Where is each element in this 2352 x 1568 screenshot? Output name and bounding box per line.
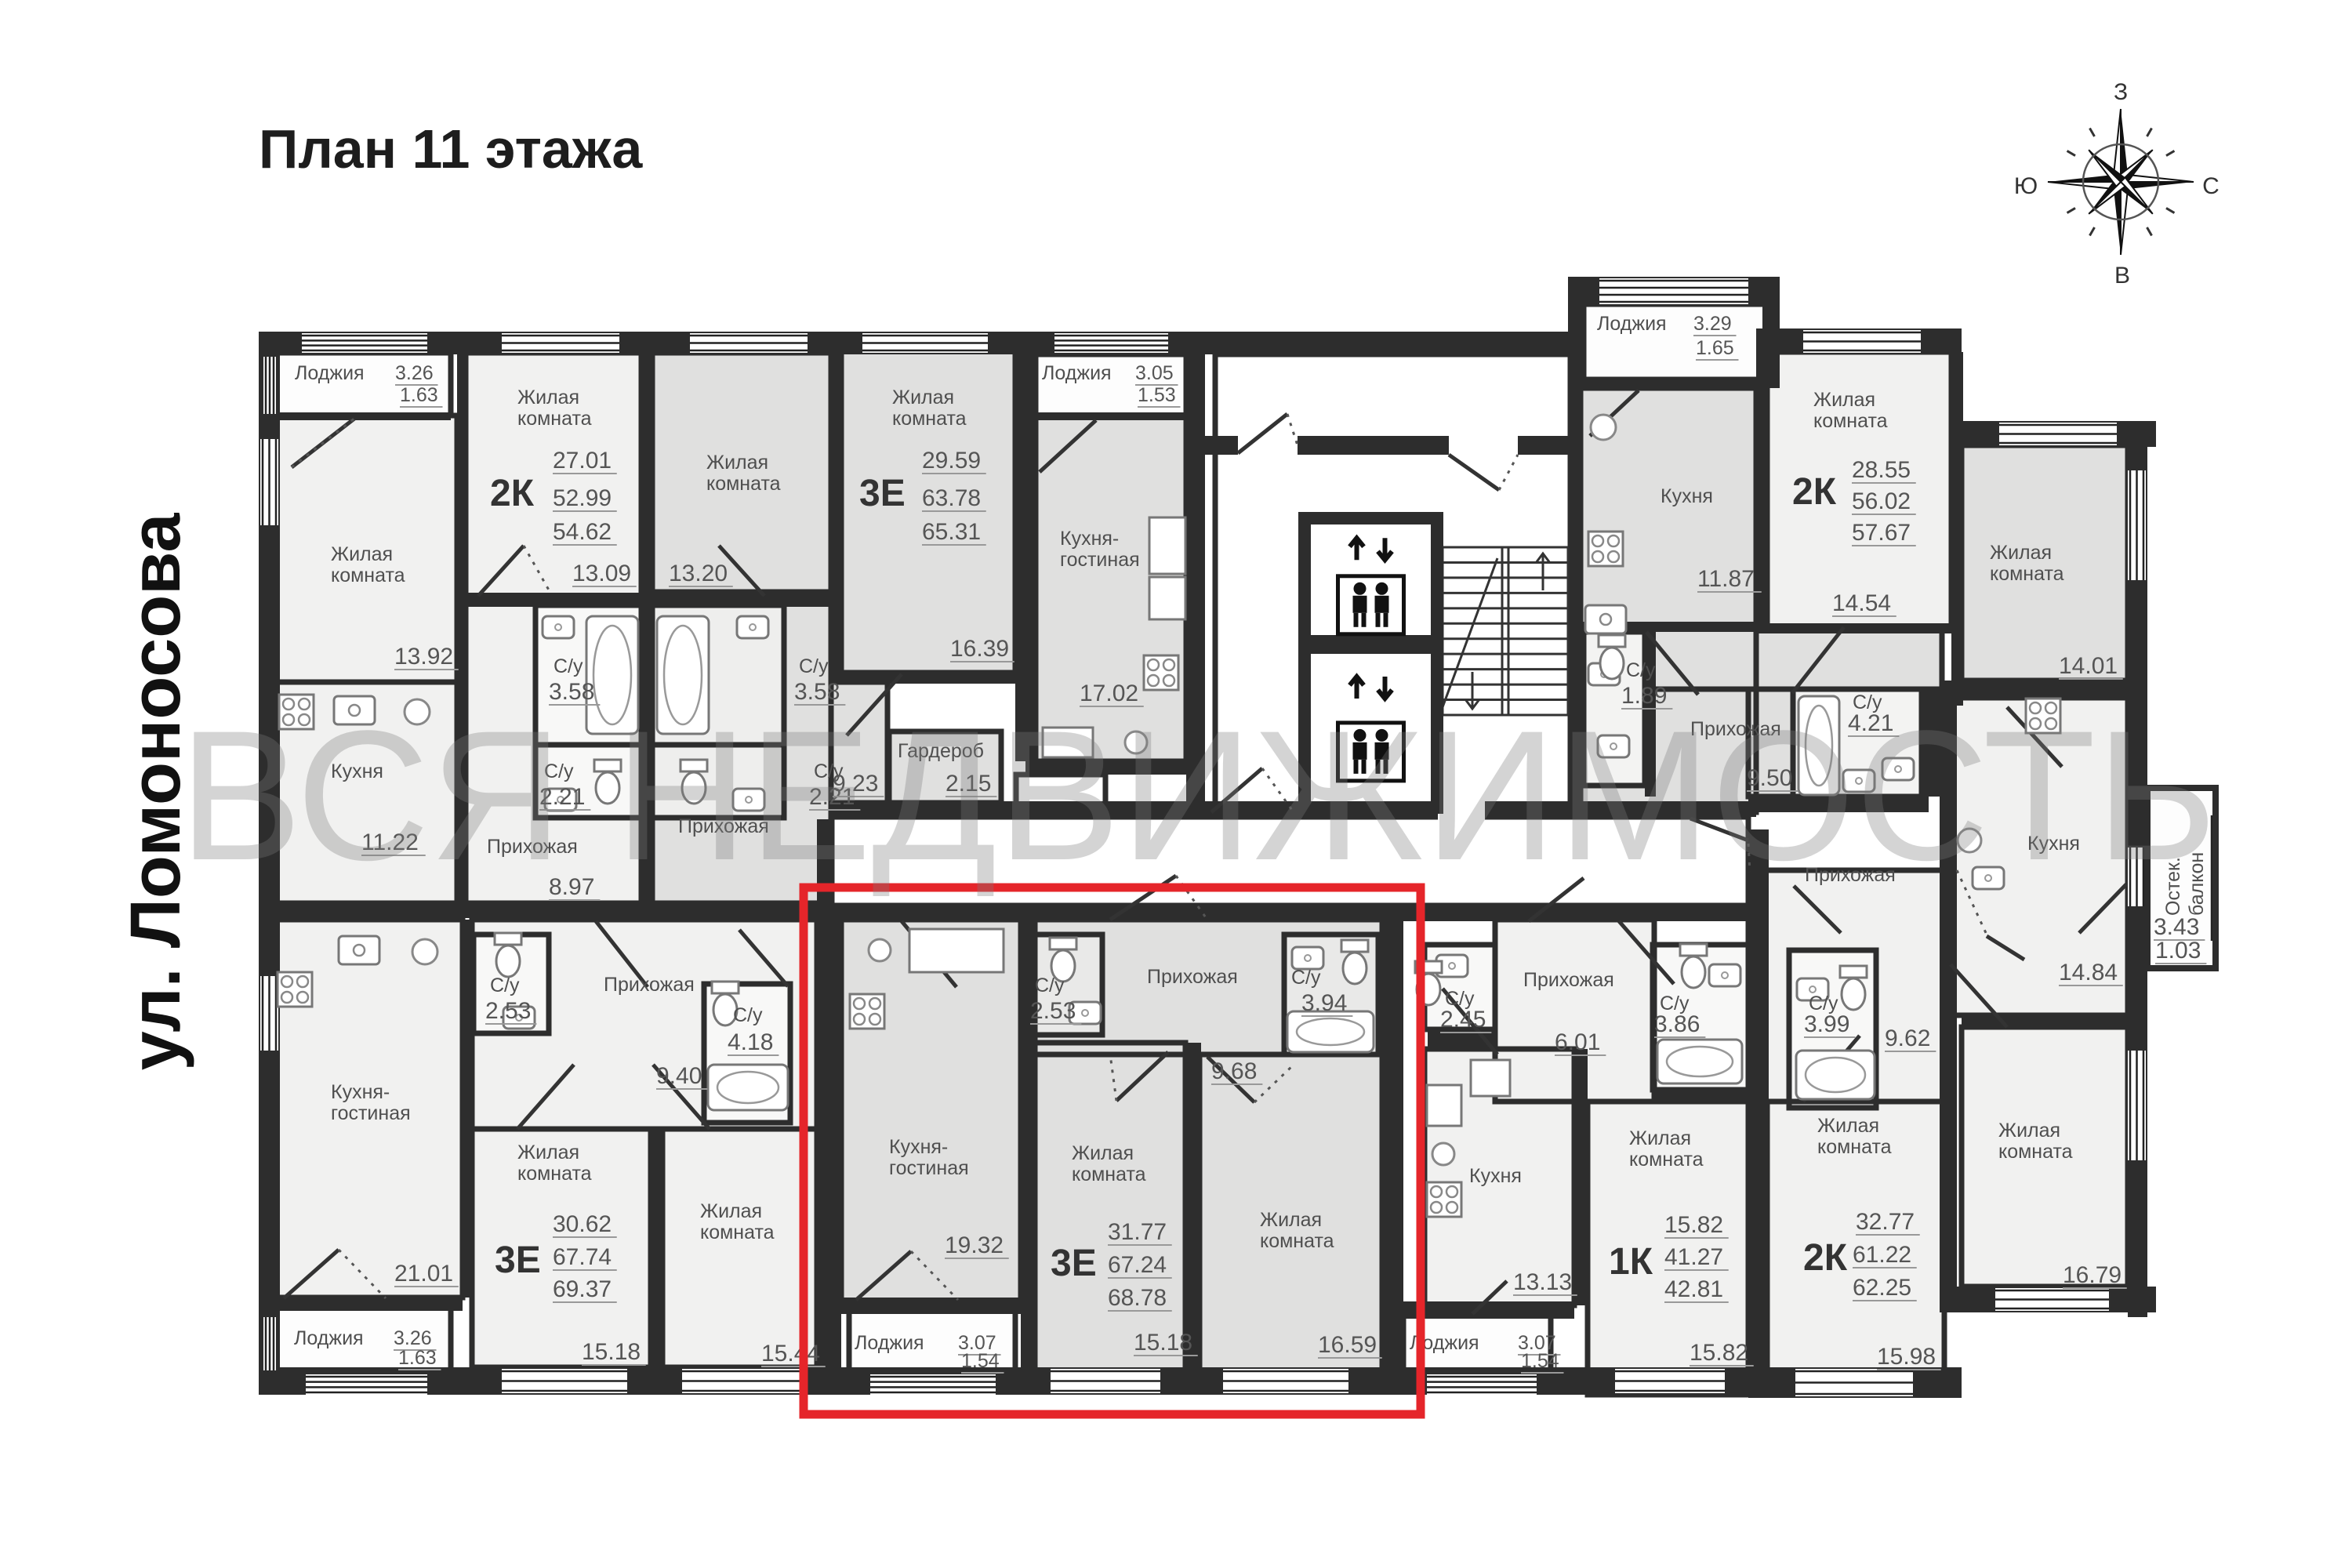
svg-text:1.63: 1.63 xyxy=(398,1347,437,1369)
svg-text:комната: комната xyxy=(1629,1149,1704,1171)
svg-text:2.45: 2.45 xyxy=(1440,1007,1486,1033)
svg-text:61.22: 61.22 xyxy=(1853,1242,1911,1268)
svg-text:С/у: С/у xyxy=(733,1004,763,1026)
svg-text:Жилая: Жилая xyxy=(700,1200,762,1222)
svg-text:Жилая: Жилая xyxy=(892,387,954,408)
svg-text:комната: комната xyxy=(331,564,405,586)
svg-text:15.18: 15.18 xyxy=(1134,1330,1192,1356)
svg-text:комната: комната xyxy=(1990,563,2064,585)
svg-text:Кухня: Кухня xyxy=(1661,485,1713,507)
svg-text:С: С xyxy=(2202,173,2220,199)
svg-text:3Е: 3Е xyxy=(859,473,906,514)
svg-text:Лоджия: Лоджия xyxy=(855,1332,924,1354)
svg-text:1.63: 1.63 xyxy=(400,384,438,406)
svg-text:14.54: 14.54 xyxy=(1832,590,1891,616)
svg-text:27.01: 27.01 xyxy=(553,448,612,474)
svg-text:2.53: 2.53 xyxy=(1030,998,1076,1024)
svg-text:Прихожая: Прихожая xyxy=(1523,969,1614,991)
svg-text:2.53: 2.53 xyxy=(485,998,531,1024)
svg-text:Кухня-: Кухня- xyxy=(331,1081,390,1103)
svg-text:68.78: 68.78 xyxy=(1108,1285,1167,1311)
svg-text:16.59: 16.59 xyxy=(1318,1332,1377,1358)
svg-text:Ю: Ю xyxy=(2014,173,2038,199)
svg-text:Жилая: Жилая xyxy=(331,543,393,565)
svg-text:3.99: 3.99 xyxy=(1804,1011,1849,1037)
svg-text:3.05: 3.05 xyxy=(1135,362,1174,384)
svg-text:Лоджия: Лоджия xyxy=(1042,362,1112,384)
svg-text:С/у: С/у xyxy=(554,655,583,677)
svg-text:15.82: 15.82 xyxy=(1690,1340,1748,1366)
svg-text:3.26: 3.26 xyxy=(394,1327,432,1349)
svg-text:В: В xyxy=(2114,263,2130,289)
svg-text:Лоджия: Лоджия xyxy=(294,1327,364,1349)
svg-text:1.54: 1.54 xyxy=(1521,1350,1559,1372)
svg-text:21.01: 21.01 xyxy=(394,1261,453,1287)
svg-text:3Е: 3Е xyxy=(1051,1243,1097,1284)
svg-text:Жилая: Жилая xyxy=(1629,1127,1691,1149)
svg-text:комната: комната xyxy=(1260,1230,1334,1252)
svg-text:комната: комната xyxy=(1813,410,1888,432)
svg-text:комната: комната xyxy=(706,473,781,495)
svg-text:Кухня-: Кухня- xyxy=(1060,528,1119,550)
svg-text:3.43: 3.43 xyxy=(2154,914,2199,940)
svg-text:41.27: 41.27 xyxy=(1664,1244,1723,1270)
svg-text:План 11 этажа: План 11 этажа xyxy=(259,118,643,180)
svg-text:3.29: 3.29 xyxy=(1693,313,1732,335)
svg-text:4.18: 4.18 xyxy=(728,1029,773,1055)
svg-text:67.24: 67.24 xyxy=(1108,1252,1167,1278)
svg-text:комната: комната xyxy=(1817,1136,1892,1158)
svg-text:гостиная: гостиная xyxy=(331,1102,411,1124)
svg-text:Лоджия: Лоджия xyxy=(295,362,365,384)
svg-text:С/у: С/у xyxy=(1291,967,1321,989)
svg-text:14.84: 14.84 xyxy=(2059,960,2118,985)
svg-text:69.37: 69.37 xyxy=(553,1276,612,1302)
svg-text:Жилая: Жилая xyxy=(1260,1209,1322,1231)
svg-text:15.98: 15.98 xyxy=(1877,1344,1936,1370)
svg-text:3Е: 3Е xyxy=(495,1240,541,1281)
svg-text:54.62: 54.62 xyxy=(553,519,612,545)
svg-text:Жилая: Жилая xyxy=(517,1142,579,1163)
svg-text:56.02: 56.02 xyxy=(1852,488,1911,514)
svg-text:6.01: 6.01 xyxy=(1555,1029,1600,1055)
svg-text:2К: 2К xyxy=(1803,1237,1848,1279)
svg-text:1.54: 1.54 xyxy=(961,1350,1000,1372)
svg-text:29.59: 29.59 xyxy=(922,448,981,474)
svg-text:14.01: 14.01 xyxy=(2059,653,2118,679)
svg-text:11.87: 11.87 xyxy=(1697,566,1755,592)
svg-text:3.26: 3.26 xyxy=(395,362,434,384)
svg-text:57.67: 57.67 xyxy=(1852,520,1911,546)
svg-text:Жилая: Жилая xyxy=(1072,1142,1134,1164)
svg-text:Кухня: Кухня xyxy=(1469,1165,1522,1187)
svg-text:комната: комната xyxy=(700,1221,775,1243)
svg-text:1.03: 1.03 xyxy=(2155,938,2201,964)
svg-text:3.94: 3.94 xyxy=(1301,990,1347,1016)
svg-text:комната: комната xyxy=(517,1163,592,1185)
svg-text:гостиная: гостиная xyxy=(889,1157,969,1179)
svg-text:16.39: 16.39 xyxy=(950,636,1009,662)
svg-text:комната: комната xyxy=(892,408,967,430)
svg-text:30.62: 30.62 xyxy=(553,1211,612,1237)
svg-text:13.92: 13.92 xyxy=(394,644,453,670)
svg-text:1.53: 1.53 xyxy=(1138,384,1176,406)
svg-text:32.77: 32.77 xyxy=(1856,1209,1915,1235)
svg-text:ВСЯ НЕДВИЖИМОСТЬ: ВСЯ НЕДВИЖИМОСТЬ xyxy=(179,692,2217,899)
svg-text:1.65: 1.65 xyxy=(1696,337,1734,359)
svg-text:комната: комната xyxy=(1998,1141,2073,1163)
svg-text:комната: комната xyxy=(517,408,592,430)
svg-text:13.09: 13.09 xyxy=(572,561,631,586)
svg-text:31.77: 31.77 xyxy=(1108,1219,1167,1245)
svg-text:Прихожая: Прихожая xyxy=(1147,966,1238,988)
svg-text:Кухня-: Кухня- xyxy=(889,1136,948,1158)
svg-text:13.20: 13.20 xyxy=(669,561,728,586)
svg-text:13.13: 13.13 xyxy=(1513,1269,1572,1295)
svg-text:2К: 2К xyxy=(490,473,535,514)
svg-text:42.81: 42.81 xyxy=(1664,1276,1723,1302)
svg-text:62.25: 62.25 xyxy=(1853,1275,1911,1301)
svg-text:3.86: 3.86 xyxy=(1654,1011,1700,1037)
svg-text:Жилая: Жилая xyxy=(1990,542,2052,564)
svg-text:Жилая: Жилая xyxy=(517,387,579,408)
svg-text:комната: комната xyxy=(1072,1163,1146,1185)
svg-text:15.82: 15.82 xyxy=(1664,1212,1723,1238)
svg-text:15.44: 15.44 xyxy=(761,1341,820,1367)
svg-text:63.78: 63.78 xyxy=(922,485,981,511)
svg-text:С/у: С/у xyxy=(1035,975,1065,996)
svg-text:Прихожая: Прихожая xyxy=(604,974,695,996)
svg-text:2К: 2К xyxy=(1792,471,1837,513)
svg-text:гостиная: гостиная xyxy=(1060,549,1140,571)
svg-text:16.79: 16.79 xyxy=(2063,1262,2122,1288)
svg-text:С/у: С/у xyxy=(799,655,829,677)
svg-text:65.31: 65.31 xyxy=(922,519,981,545)
svg-text:Жилая: Жилая xyxy=(1817,1115,1879,1137)
svg-text:9.40: 9.40 xyxy=(656,1063,702,1089)
svg-text:9.68: 9.68 xyxy=(1211,1058,1257,1084)
svg-text:67.74: 67.74 xyxy=(553,1244,612,1270)
svg-text:Жилая: Жилая xyxy=(1998,1120,2060,1142)
svg-text:19.32: 19.32 xyxy=(945,1232,1004,1258)
svg-text:1К: 1К xyxy=(1609,1241,1653,1283)
svg-text:52.99: 52.99 xyxy=(553,485,612,511)
svg-text:Жилая: Жилая xyxy=(1813,389,1875,411)
svg-text:15.18: 15.18 xyxy=(582,1339,641,1365)
svg-text:9.62: 9.62 xyxy=(1885,1025,1930,1051)
svg-text:28.55: 28.55 xyxy=(1852,457,1911,483)
svg-text:С/у: С/у xyxy=(1626,659,1656,681)
svg-text:Лоджия: Лоджия xyxy=(1597,313,1667,335)
svg-text:С/у: С/у xyxy=(490,975,520,996)
svg-text:З: З xyxy=(2114,79,2128,105)
svg-text:Жилая: Жилая xyxy=(706,452,768,474)
